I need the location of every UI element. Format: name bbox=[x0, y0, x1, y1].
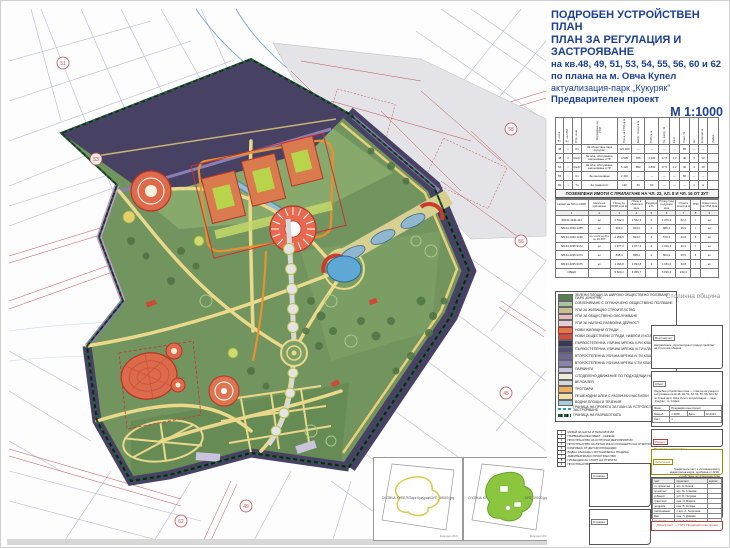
t1-header: Отреждане на УПИ bbox=[582, 118, 618, 145]
section-label: Раздел: bbox=[653, 439, 668, 445]
inset-right-caption-right: ЗУП_19000.jpg bbox=[525, 496, 548, 500]
t2-header: Нова площ на УПИ кв.м bbox=[700, 200, 718, 211]
legend-label: ПАРКИНГИ bbox=[575, 368, 593, 371]
t2-row: 68134.4335.9474нл838,4838,44804,933,5IIн… bbox=[556, 251, 719, 260]
legend-item: УПИ ЗА ОБЩЕСТВЕНО ОБСЛУЖВАНЕ bbox=[558, 314, 674, 321]
object-text: Подробен устройствен план — план за регу… bbox=[652, 390, 722, 405]
t1-header: Пл. застр. % bbox=[659, 118, 670, 145]
legend-swatch bbox=[558, 347, 573, 354]
legend-swatch bbox=[558, 393, 573, 400]
section-box: Раздел: Регулация и застрояване bbox=[651, 429, 723, 447]
t1-header: № на УПИ bbox=[564, 118, 572, 145]
land-plots-table: ПОЗЕМЛЕНИ ИМОТИ С ПРИЛАГАНЕ НА ЧЛ. 22, А… bbox=[555, 189, 719, 278]
t2-row: 68134.4334.1385нл923,0923,04886,136,9Iнл bbox=[556, 225, 719, 234]
sheet-value: 1 bbox=[670, 417, 722, 423]
legend-swatch bbox=[558, 301, 573, 308]
plan-sheet: 51 53 58 56 45 47 49 62 О:\ОВЧА КУПЕЛ\Па… bbox=[0, 0, 730, 548]
round-playground bbox=[209, 376, 239, 406]
legend-swatch bbox=[558, 414, 571, 417]
legend-swatch bbox=[558, 380, 573, 387]
inset-map-filled: О:\ОВЧА КУ ЗУП_19000.jpg Февруари 2021 bbox=[463, 457, 553, 541]
legend-label: ВОДНИ ПЛОЩИ И ТЕЧЕНИЯ bbox=[575, 401, 621, 404]
t2-header: УПИ bbox=[691, 200, 700, 211]
legend-label: ПЪРВОСТЕПЕННА УЛИЧНА МРЕЖА III-ТИ КЛАС bbox=[575, 348, 653, 351]
t2-header: Площ в обхвата в кв.м bbox=[628, 200, 645, 211]
note-box: Забележка: Графичната част е изготвена в… bbox=[651, 449, 723, 475]
info-panel: ПОДРОБЕН УСТРОЙСТВЕН ПЛАН ПЛАН ЗА РЕГУЛА… bbox=[547, 5, 725, 547]
client-line-2: на Столична община bbox=[654, 347, 720, 350]
title-park: актуализация-парк „Кукуряк“ bbox=[551, 83, 723, 94]
t2-header: Редукция в % bbox=[645, 200, 657, 211]
quarter-marker-label: 62 bbox=[178, 519, 184, 525]
note-label: Забележка: bbox=[653, 459, 673, 465]
inset-right-caption-left: О:\ОВЧА КУ bbox=[468, 496, 488, 500]
client-box: Възложител: Направление „Архитектура и г… bbox=[651, 325, 723, 369]
signatures-box: частпроектантподписгл. проектантарх. Н. … bbox=[651, 477, 723, 519]
legend-label: ЗЕЛЕНИ ПЛОЩИ ЗА ШИРОКО ОБЩЕСТВЕНО ПОЛЗВА… bbox=[575, 294, 674, 301]
legend-label: ПЪРВОСТЕПЕННА УЛИЧНА МРЕЖА II-РИ КЛАС bbox=[575, 342, 652, 345]
sheet-label: Лист bbox=[653, 417, 670, 423]
t2-row: 68134.4334.421нл1 532,31 532,341 470,162… bbox=[556, 216, 719, 225]
t1-header: Забел. bbox=[708, 118, 719, 145]
title-line-2: ПЛАН ЗА РЕГУЛАЦИЯ И ЗАСТРОЯВАНЕ bbox=[551, 34, 723, 59]
legend-item: ОЗЕЛЕНЯВАНЕ С ОГРАНИЧЕНО ОБЩЕСТВЕНО ПОЛЗ… bbox=[558, 301, 674, 308]
legend-label: НОВИ ЖИЛИЩНИ СГРАДИ bbox=[575, 329, 618, 332]
legend-label: НОВИ ОБЩЕСТВЕНИ СГРАДИ, НАВЕСИ И КОЗИРКИ bbox=[575, 335, 660, 338]
inset-left-footer: Февруари 2021 bbox=[440, 534, 459, 538]
inset-left-caption: О:\ОВЧА КУПЕЛ\Парк Кукуряк\ОУП_19000.jpg bbox=[382, 496, 454, 500]
t1-row: 54IСмф*За общ. обслужване, озеленяване и… bbox=[556, 163, 719, 172]
legend-label: ВТОРОСТЕПЕННА УЛИЧНА МРЕЖА V-ТИ КЛАС bbox=[575, 362, 652, 365]
t2-header: Площ след редукция кв.м bbox=[657, 200, 675, 211]
legend-swatch bbox=[558, 294, 573, 301]
t2-header: Начин на прилагане bbox=[588, 200, 610, 211]
inset-right-footer: Февруари 2021 bbox=[530, 534, 549, 538]
legend-swatch bbox=[558, 340, 573, 347]
legend-swatch bbox=[558, 373, 573, 380]
object-box: Обект: Подробен устройствен план — план … bbox=[651, 371, 723, 427]
legend-label: УПИ ЗА ОБЩЕСТВЕНО ОБСЛУЖВАНЕ bbox=[575, 315, 637, 318]
t2-header: Номер на ПИ по КККР bbox=[556, 200, 589, 211]
red-note-text: „Овча Купел“ — ПУП, Предварителен проект bbox=[652, 522, 722, 529]
client-label: Възложител: bbox=[653, 335, 675, 341]
legend-swatch bbox=[558, 334, 573, 341]
legend-swatch bbox=[558, 367, 573, 374]
quarter-marker-label: 49 bbox=[243, 504, 249, 510]
quarter-marker-label: 53 bbox=[93, 157, 99, 163]
t1-header: Кинт bbox=[670, 118, 680, 145]
land-plots-table-title: ПОЗЕМЛЕНИ ИМОТИ С ПРИЛАГАНЕ НА ЧЛ. 22, А… bbox=[555, 189, 719, 198]
drawing-title: ПОДРОБЕН УСТРОЙСТВЕН ПЛАН ПЛАН ЗА РЕГУЛА… bbox=[551, 9, 723, 119]
spravka-1-label: Справка: bbox=[591, 473, 608, 479]
legend-label: ПЕШЕХОДНИ АЛЕИ С РАЗЛИЧНИ НАСТИЛКИ bbox=[575, 395, 649, 398]
titleblock-column: Възложител: Направление „Архитектура и г… bbox=[651, 325, 723, 533]
fountain-plaza bbox=[131, 171, 171, 211]
legend-swatch bbox=[558, 307, 573, 314]
legend-item: ЗЕЛЕНИ ПЛОЩИ ЗА ШИРОКО ОБЩЕСТВЕНО ПОЛЗВА… bbox=[558, 294, 674, 301]
inset-map-outline: О:\ОВЧА КУПЕЛ\Парк Кукуряк\ОУП_19000.jpg… bbox=[373, 457, 463, 541]
t1-row: 55IОзЗа озеленяване2 410————80—— bbox=[556, 172, 719, 181]
legend-swatch bbox=[558, 400, 573, 407]
t1-header: РЗП кв.м bbox=[645, 118, 659, 145]
t1-header: Ет. bbox=[690, 118, 698, 145]
legend-label: УПИ ЗА НАУЧНО-РАЗВОЙНА ДЕЙНОСТ bbox=[575, 322, 639, 325]
t2-row: 68134.4335.9475нл1 094,81 094,841 051,04… bbox=[556, 260, 719, 269]
spravka-box-2: Справка: bbox=[589, 509, 651, 545]
legend-label: ГРАНИЦА НА РАЗРАБОТКАТА bbox=[573, 414, 621, 417]
legend-swatch bbox=[558, 353, 573, 360]
t1-header: Озел. % bbox=[679, 118, 690, 145]
quarter-marker-label: 45 bbox=[503, 391, 509, 397]
title-quarters: на кв.48, 49, 51, 53, 54, 55, 56, 60 и 6… bbox=[551, 59, 723, 70]
balance-table: № на кв.№ на УПИУстр. зонаОтреждане на У… bbox=[555, 117, 719, 199]
title-locality: по плана на м. Овча Купел bbox=[551, 71, 723, 82]
t1-row: 48IОзЗа обществен парк „Кукуряк“122 460—… bbox=[556, 145, 719, 154]
t1-header: Площ на УПИ кв.м bbox=[617, 118, 631, 145]
lake bbox=[327, 256, 361, 282]
legend-swatch bbox=[558, 320, 573, 327]
legend-label: УПИ ЗА ЖИЛИЩНО СТРОИТЕЛСТВО bbox=[575, 309, 635, 312]
t2-header: Площ по КККР в кв.м bbox=[611, 200, 628, 211]
t2-row: ОБЩО9 820,26 059,75 816,4243,3 bbox=[556, 268, 719, 277]
municipality-label: Столична община bbox=[663, 293, 723, 300]
legend-swatch bbox=[558, 327, 573, 334]
legend-swatch bbox=[558, 314, 573, 321]
t1-header: Н корниз м bbox=[698, 118, 708, 145]
spravka-2-label: Справка: bbox=[591, 519, 608, 525]
t2-row: 68134.4335.9472нл1 077,21 077,241 034,14… bbox=[556, 242, 719, 251]
legend-label: ТРОТОАРИ bbox=[575, 388, 593, 391]
legend-swatch bbox=[558, 408, 571, 410]
spravka-box-1: Справка: bbox=[589, 463, 651, 507]
legend-label: ВЕЛОАЛЕЯ bbox=[575, 381, 594, 384]
legend-swatch bbox=[558, 360, 573, 367]
legend-label: ОЗЕЛЕНЯВАНЕ С ОГРАНИЧЕНО ОБЩЕСТВЕНО ПОЛЗ… bbox=[575, 302, 673, 305]
t1-header: Застр. площ кв.м bbox=[632, 118, 645, 145]
object-label: Обект: bbox=[653, 381, 666, 387]
red-note-box: „Овча Купел“ — ПУП, Предварителен проект bbox=[651, 521, 723, 531]
t2-header: Отнета площ кв.м bbox=[676, 200, 691, 211]
park-objects-list: 1 МУЗЕЙ ЗА НАУКА И ТЕХНОЛОГИИ 2 ПЪРВОНАЧ… bbox=[557, 431, 653, 467]
title-line-1: ПОДРОБЕН УСТРОЙСТВЕН ПЛАН bbox=[551, 9, 723, 34]
quarter-marker-label: 56 bbox=[518, 239, 524, 245]
t1-header: Устр. зона bbox=[572, 118, 582, 145]
legend-item: УПИ ЗА ЖИЛИЩНО СТРОИТЕЛСТВО bbox=[558, 307, 674, 314]
t1-header: № на кв. bbox=[556, 118, 564, 145]
park-object-number: 9 bbox=[557, 462, 566, 467]
legend-swatch bbox=[558, 386, 573, 393]
legend-label: ВТОРОСТЕПЕННА УЛИЧНА МРЕЖА IV-ТИ КЛАС bbox=[575, 355, 653, 358]
t1-row: 48IIСмф*За общ. обслужване, озеленяване … bbox=[556, 154, 719, 163]
quarter-marker-label: 51 bbox=[60, 61, 66, 67]
quarter-marker-label: 58 bbox=[508, 127, 514, 133]
t2-row: 68134.4334.1249по чл.22 ал.8 и чл.16 ЗУТ… bbox=[556, 233, 719, 242]
